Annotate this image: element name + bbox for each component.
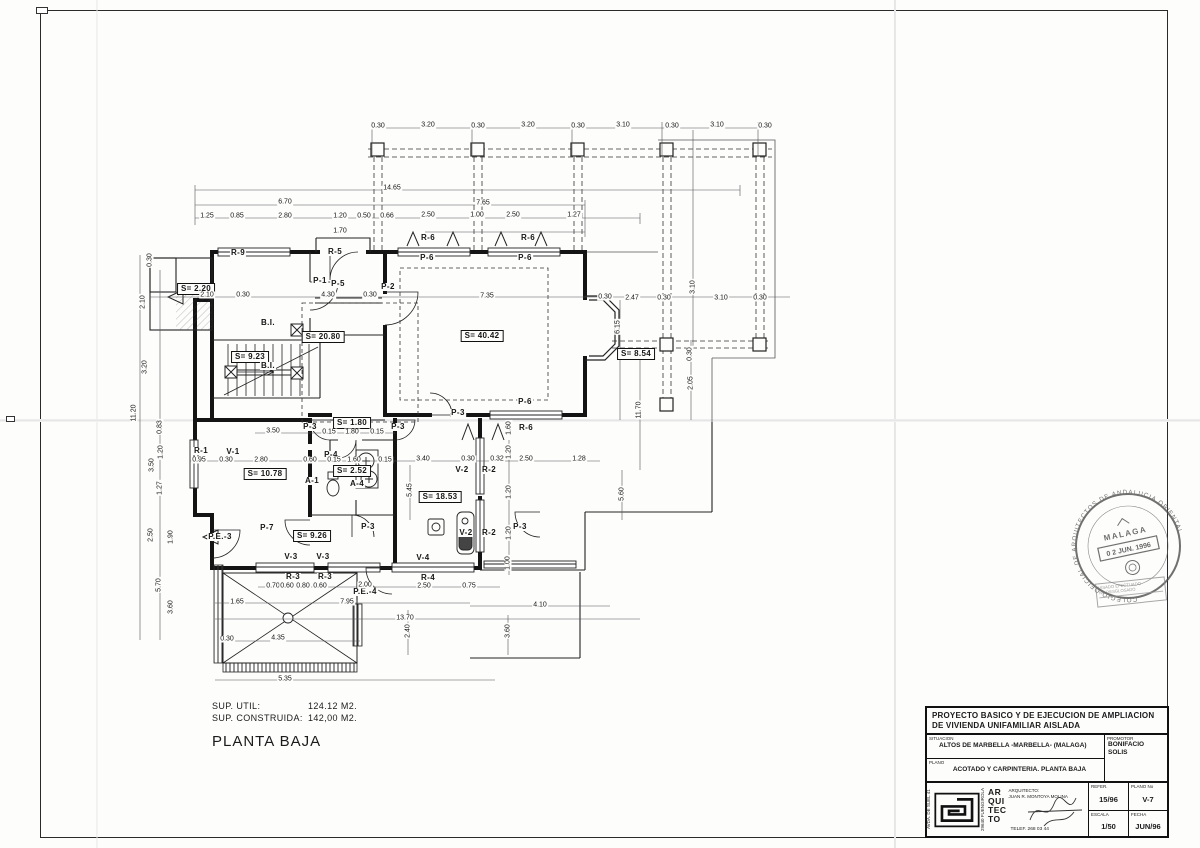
plano-value: ACOTADO Y CARPINTERIA. PLANTA BAJA bbox=[927, 766, 1104, 775]
architect-logo bbox=[934, 787, 980, 832]
situacion-value: ALTOS DE MARBELLA -MARBELLA- (MALAGA) bbox=[927, 742, 1104, 751]
bay-window bbox=[585, 296, 619, 360]
promotor-value: BONIFACIO SOLIS bbox=[1105, 741, 1167, 758]
arq-stack-line: TO bbox=[988, 815, 1007, 824]
situacion-caption: SITUACION bbox=[927, 735, 956, 741]
sup-construida-label: SUP. CONSTRUIDA: bbox=[212, 712, 308, 724]
arq-stack: ARQUITECTO bbox=[988, 788, 1007, 836]
terrace bbox=[176, 292, 362, 672]
sup-util-value: 124.12 M2. bbox=[308, 700, 357, 712]
fecha-value: JUN/96 bbox=[1129, 817, 1167, 837]
plano-no-value: V-7 bbox=[1129, 789, 1167, 810]
escala-value: 1/50 bbox=[1089, 817, 1128, 837]
fixtures bbox=[327, 450, 474, 554]
sup-construida-value: 142,00 M2. bbox=[308, 712, 357, 724]
address-line2: 29640 FUENGIROLA bbox=[981, 783, 986, 836]
telef: TELEF. 268 03 44 bbox=[1011, 827, 1049, 833]
title-block: PROYECTO BASICO Y DE EJECUCION DE AMPLIA… bbox=[925, 706, 1169, 838]
plano-caption: PLANO bbox=[927, 759, 946, 765]
address-line1: AVDA. DE SUEL 41 bbox=[927, 783, 932, 836]
pergola-columns bbox=[371, 143, 766, 411]
bi-shafts bbox=[225, 298, 382, 379]
dashed-regions bbox=[302, 268, 548, 422]
signature-icon bbox=[1024, 790, 1088, 830]
refer-value: 15/96 bbox=[1089, 789, 1128, 810]
awning-symbols bbox=[407, 232, 547, 440]
walls bbox=[195, 252, 585, 568]
sup-util-label: SUP. UTIL: bbox=[212, 700, 308, 712]
pergola-outline bbox=[585, 140, 775, 428]
area-summary: SUP. UTIL: 124.12 M2. SUP. CONSTRUIDA: 1… bbox=[212, 700, 357, 750]
pergola-beams bbox=[368, 149, 772, 404]
greek-key-logo-icon bbox=[934, 792, 980, 828]
partitions bbox=[150, 238, 712, 658]
floor-title: PLANTA BAJA bbox=[212, 733, 357, 750]
architect-cell: AVDA. DE SUEL 41 29640 FUENGIROLA ARQUIT… bbox=[927, 783, 1089, 836]
dimension-lines bbox=[140, 122, 790, 680]
project-title: PROYECTO BASICO Y DE EJECUCION DE AMPLIA… bbox=[927, 708, 1167, 735]
drawing-sheet: COLEGIO OFICIAL DE ARQUITECTOS DE ANDALU… bbox=[0, 0, 1200, 848]
